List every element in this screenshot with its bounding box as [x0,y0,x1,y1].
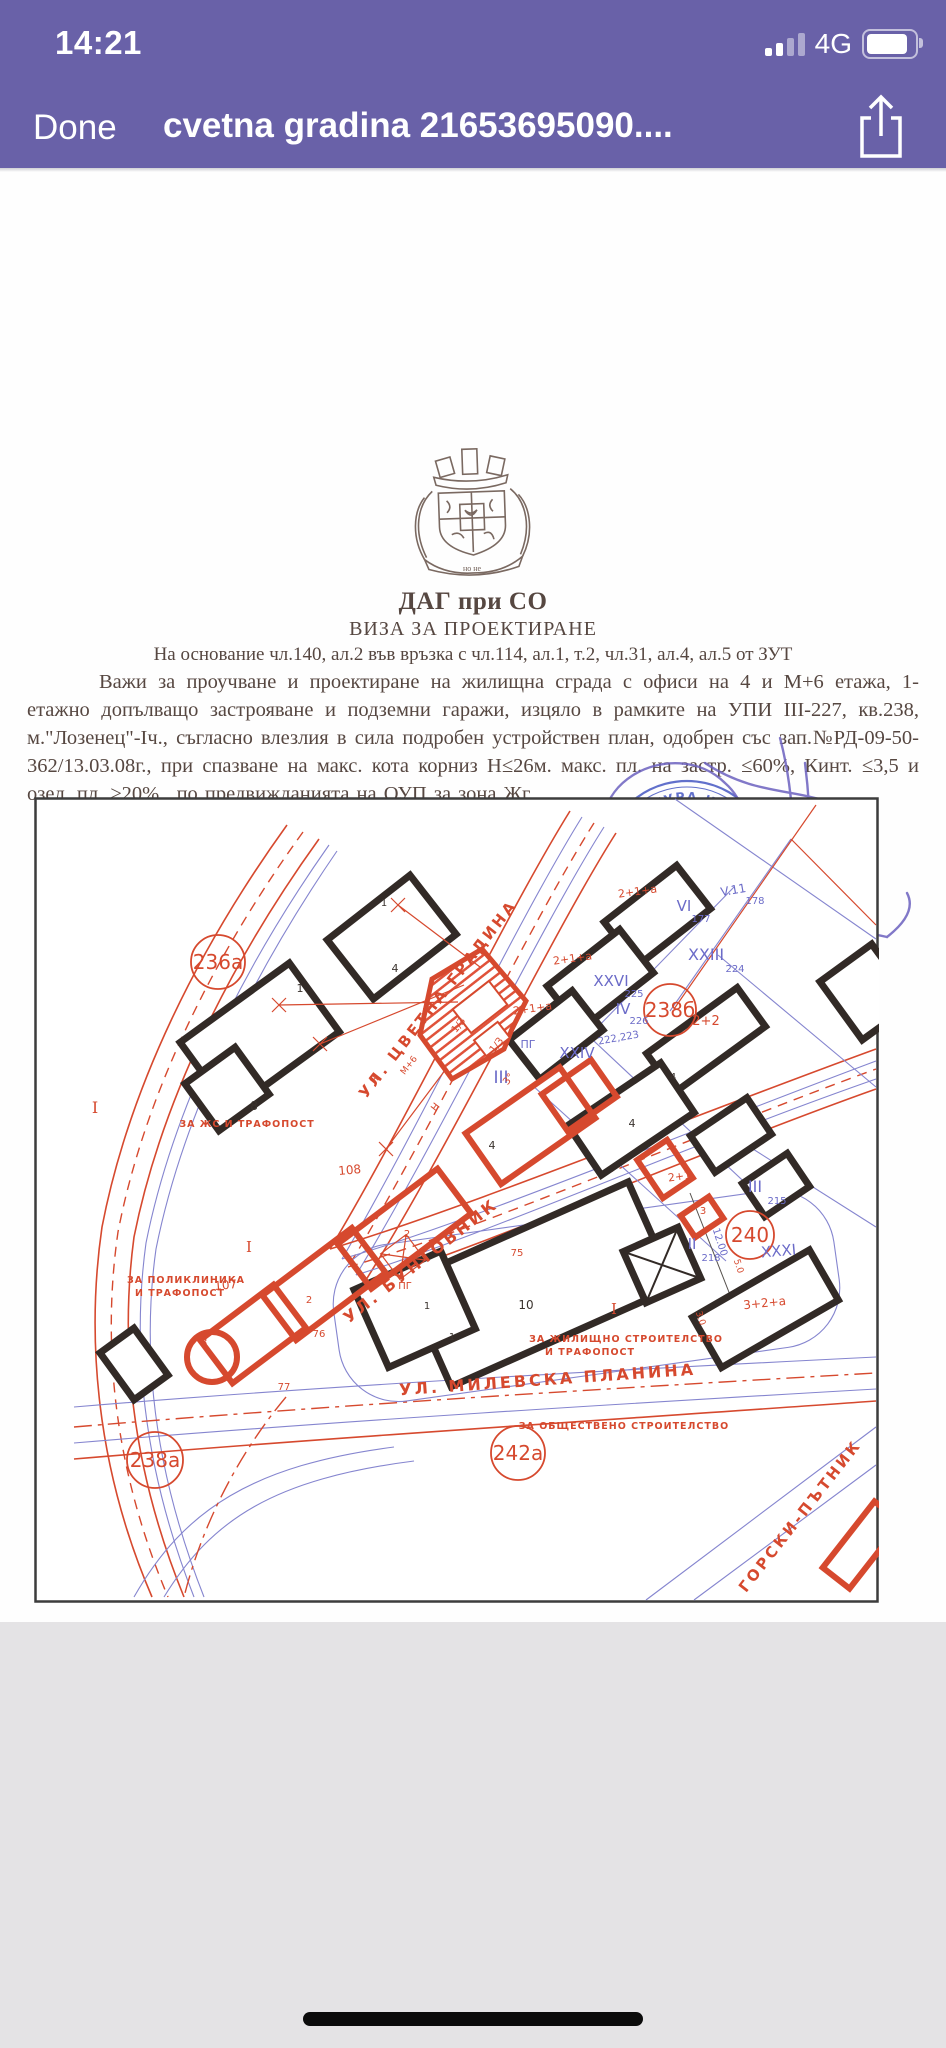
map-label: 1 [424,1301,430,1312]
svg-text:242а: 242а [493,1441,543,1465]
document-title: cvetna gradina 21653695090.... [163,106,673,146]
map-label: II [688,1235,697,1253]
map-label: 177 [691,914,710,925]
legal-basis-line: На основание чл.140, ал.2 във връзка с ч… [0,644,946,666]
map-label: 224 [725,964,744,975]
map-label: ПГ [521,1038,536,1051]
map-label: 1 [381,898,387,909]
emblem-motto: но не [463,564,482,573]
map-label: III [748,1177,762,1196]
svg-text:236а: 236а [193,950,243,974]
map-label: I [611,1300,617,1318]
map-label: И ТРАФОПОСТ [135,1288,225,1299]
map-label: 8 [250,1099,258,1113]
network-type-label: 4G [815,28,852,60]
map-label: 3 [201,1336,208,1349]
share-button[interactable] [852,92,910,162]
map-label: 226 [629,1016,648,1027]
map-label: XXXI [760,1241,797,1262]
map-label: ЗА ПОЛИКЛИНИКА [127,1275,245,1286]
org-heading: ДАГ при СО [0,588,946,616]
svg-text:238б: 238б [645,998,696,1022]
map-label: ЗА ЖС И ТРАФОПОСТ [179,1119,314,1130]
map-label: ЗА ОБЩЕСТВЕНО СТРОИТЕЛСТВО [519,1421,729,1432]
site-plan-map: 236а238б240242а238а УЛ. ЦВЕТНА ГРАДИНАУЛ… [34,797,879,1608]
map-label: 225 [624,989,643,1000]
map-label: XXIII [688,945,724,964]
map-label: I [92,1098,98,1117]
signal-strength-icon [765,32,805,56]
map-label: 2 [404,1229,410,1240]
map-label: 108 [338,1162,362,1178]
map-label: 4 [629,1117,636,1130]
map-label: 2 [306,1295,312,1306]
map-label: 1 [297,982,304,995]
map-label: 4 [392,962,399,975]
svg-text:238а: 238а [130,1448,180,1472]
map-label: 2+2 [692,1014,719,1029]
done-button[interactable]: Done [33,108,117,148]
sofia-coat-of-arms: но не [409,442,535,587]
pdf-background [0,1622,946,2048]
home-indicator[interactable] [303,2012,643,2026]
map-label: 215 [767,1196,786,1207]
share-icon [852,92,910,162]
map-label: 10 [518,1298,533,1312]
map-label: VI [677,897,692,915]
purple-header: 14:21 4G Done cvetna gradina 21653695090… [0,0,946,168]
map-label: 1 [449,1332,455,1343]
map-label: 75 [511,1248,524,1259]
map-label: 4 [489,1139,496,1152]
map-label: 77 [278,1382,291,1393]
map-label: И ТРАФОПОСТ [545,1347,635,1358]
map-label: 4 [670,1072,676,1083]
map-label: ЗА ЖИЛИЩНО СТРОИТЕЛСТВО [529,1334,723,1345]
map-label: XXIV [559,1044,595,1062]
battery-icon [862,29,918,59]
doc-type-heading: ВИЗА ЗА ПРОЕКТИРАНЕ [0,618,946,641]
status-right-cluster: 4G [765,28,918,60]
map-label: I [246,1238,252,1256]
map-label: XXVI [593,972,628,990]
map-label: 3 [700,1206,706,1217]
map-label: ПГ [398,1281,412,1292]
status-time: 14:21 [55,24,142,62]
map-label: 76 [313,1329,326,1340]
map-label: 178 [745,896,764,907]
